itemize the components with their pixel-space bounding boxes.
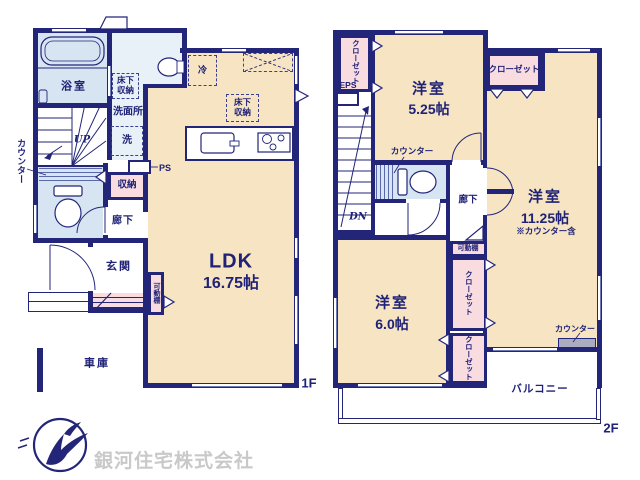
label-ldk-name: LDK xyxy=(209,251,253,274)
door-arc-room-a xyxy=(452,133,481,162)
label-balcony: バルコニー xyxy=(511,383,568,395)
label-eps: EPS xyxy=(339,81,356,91)
label-room-a-size: 5.25帖 xyxy=(408,101,449,117)
label-entrance: 玄関 xyxy=(106,261,132,274)
label-room-c-name: 洋室 xyxy=(375,294,409,311)
company-logo xyxy=(18,419,88,471)
label-room-b-note: ※カウンター含 xyxy=(516,227,576,237)
label-ps: PS xyxy=(159,163,171,173)
folding-door-wedge xyxy=(372,82,382,94)
company-name: 銀河住宅株式会社 xyxy=(94,446,254,473)
stairs-2f xyxy=(338,106,371,227)
folding-door-wedge xyxy=(485,259,495,271)
label-washroom: 洗面所 xyxy=(113,106,143,118)
label-storage: 収納 xyxy=(117,181,136,192)
stairs-1f xyxy=(38,103,106,166)
folding-door-wedge xyxy=(520,89,534,98)
bathtub-inner xyxy=(45,41,100,61)
label-bath: 浴室 xyxy=(61,81,87,94)
folding-door-wedge xyxy=(485,317,495,329)
toilet-tank-icon xyxy=(54,186,82,196)
label-movable-shelf-2f: 可動棚 xyxy=(458,245,479,253)
label-stairs-dn: DN xyxy=(349,211,367,223)
double-door-arcs-room-b xyxy=(487,168,514,215)
faucet-icon xyxy=(230,141,239,146)
porch-diagonal xyxy=(93,293,111,312)
label-hallway-2f: 廊下 xyxy=(458,196,477,207)
label-counter-balcony: カウンター xyxy=(555,324,595,333)
door-wedge xyxy=(295,89,308,103)
folding-door-wedge xyxy=(164,296,174,308)
fixtures-layer xyxy=(0,0,640,480)
folding-door-wedge xyxy=(96,170,106,184)
toilet-bowl-icon-2f xyxy=(410,171,436,193)
label-closet-east-upper: クローゼット xyxy=(464,271,473,316)
folding-door-wedge xyxy=(439,370,449,382)
folding-door-wedge xyxy=(372,40,382,52)
counter-pointer-balcony xyxy=(573,333,580,342)
door-arc-toilet-2f xyxy=(408,203,440,235)
label-movable-shelf-1f: 可動棚 xyxy=(152,283,160,304)
toilet-bowl-icon xyxy=(55,199,81,227)
label-counter-toilet: カウンター xyxy=(391,147,434,157)
label-hallway-1f: 廊下 xyxy=(112,215,134,227)
label-floor-2: 2F xyxy=(603,422,618,437)
folding-door-wedge xyxy=(490,89,504,98)
label-closet-east-lower: クローゼット xyxy=(464,336,473,381)
logo-speed-marks xyxy=(18,438,29,448)
label-garage: 車庫 xyxy=(84,358,110,371)
door-wedge xyxy=(466,226,483,240)
label-closet-nw: クローゼット xyxy=(351,40,360,85)
label-room-b-name: 洋室 xyxy=(528,188,562,205)
bath-stool-icon xyxy=(39,90,47,103)
label-closet-north: クローゼット xyxy=(488,65,539,75)
counter-pointer xyxy=(27,169,46,175)
label-room-a-name: 洋室 xyxy=(412,80,446,97)
label-stairs-up: UP xyxy=(74,134,90,146)
label-room-c-size: 6.0帖 xyxy=(375,316,408,332)
label-counter-side: カウンター xyxy=(16,139,26,184)
door-arc-entrance xyxy=(50,245,95,290)
label-floor-1: 1F xyxy=(301,377,316,392)
floor-plan-canvas: 床下収納 洗 冷 床下収納 浴室 洗面所 UP カウンター PS 収納 廊下 玄… xyxy=(0,0,640,480)
stove-icon xyxy=(258,133,290,152)
label-ldk-size: 16.75帖 xyxy=(203,275,259,293)
logo-bird-wing xyxy=(64,422,81,436)
sink-icon xyxy=(201,133,234,153)
label-room-b-size: 11.25帖 xyxy=(521,210,569,226)
toilet-tank-icon-2f xyxy=(398,169,407,195)
folding-door-wedge xyxy=(439,334,449,346)
vent-icon xyxy=(100,17,127,29)
basin-cabinet xyxy=(177,61,184,73)
